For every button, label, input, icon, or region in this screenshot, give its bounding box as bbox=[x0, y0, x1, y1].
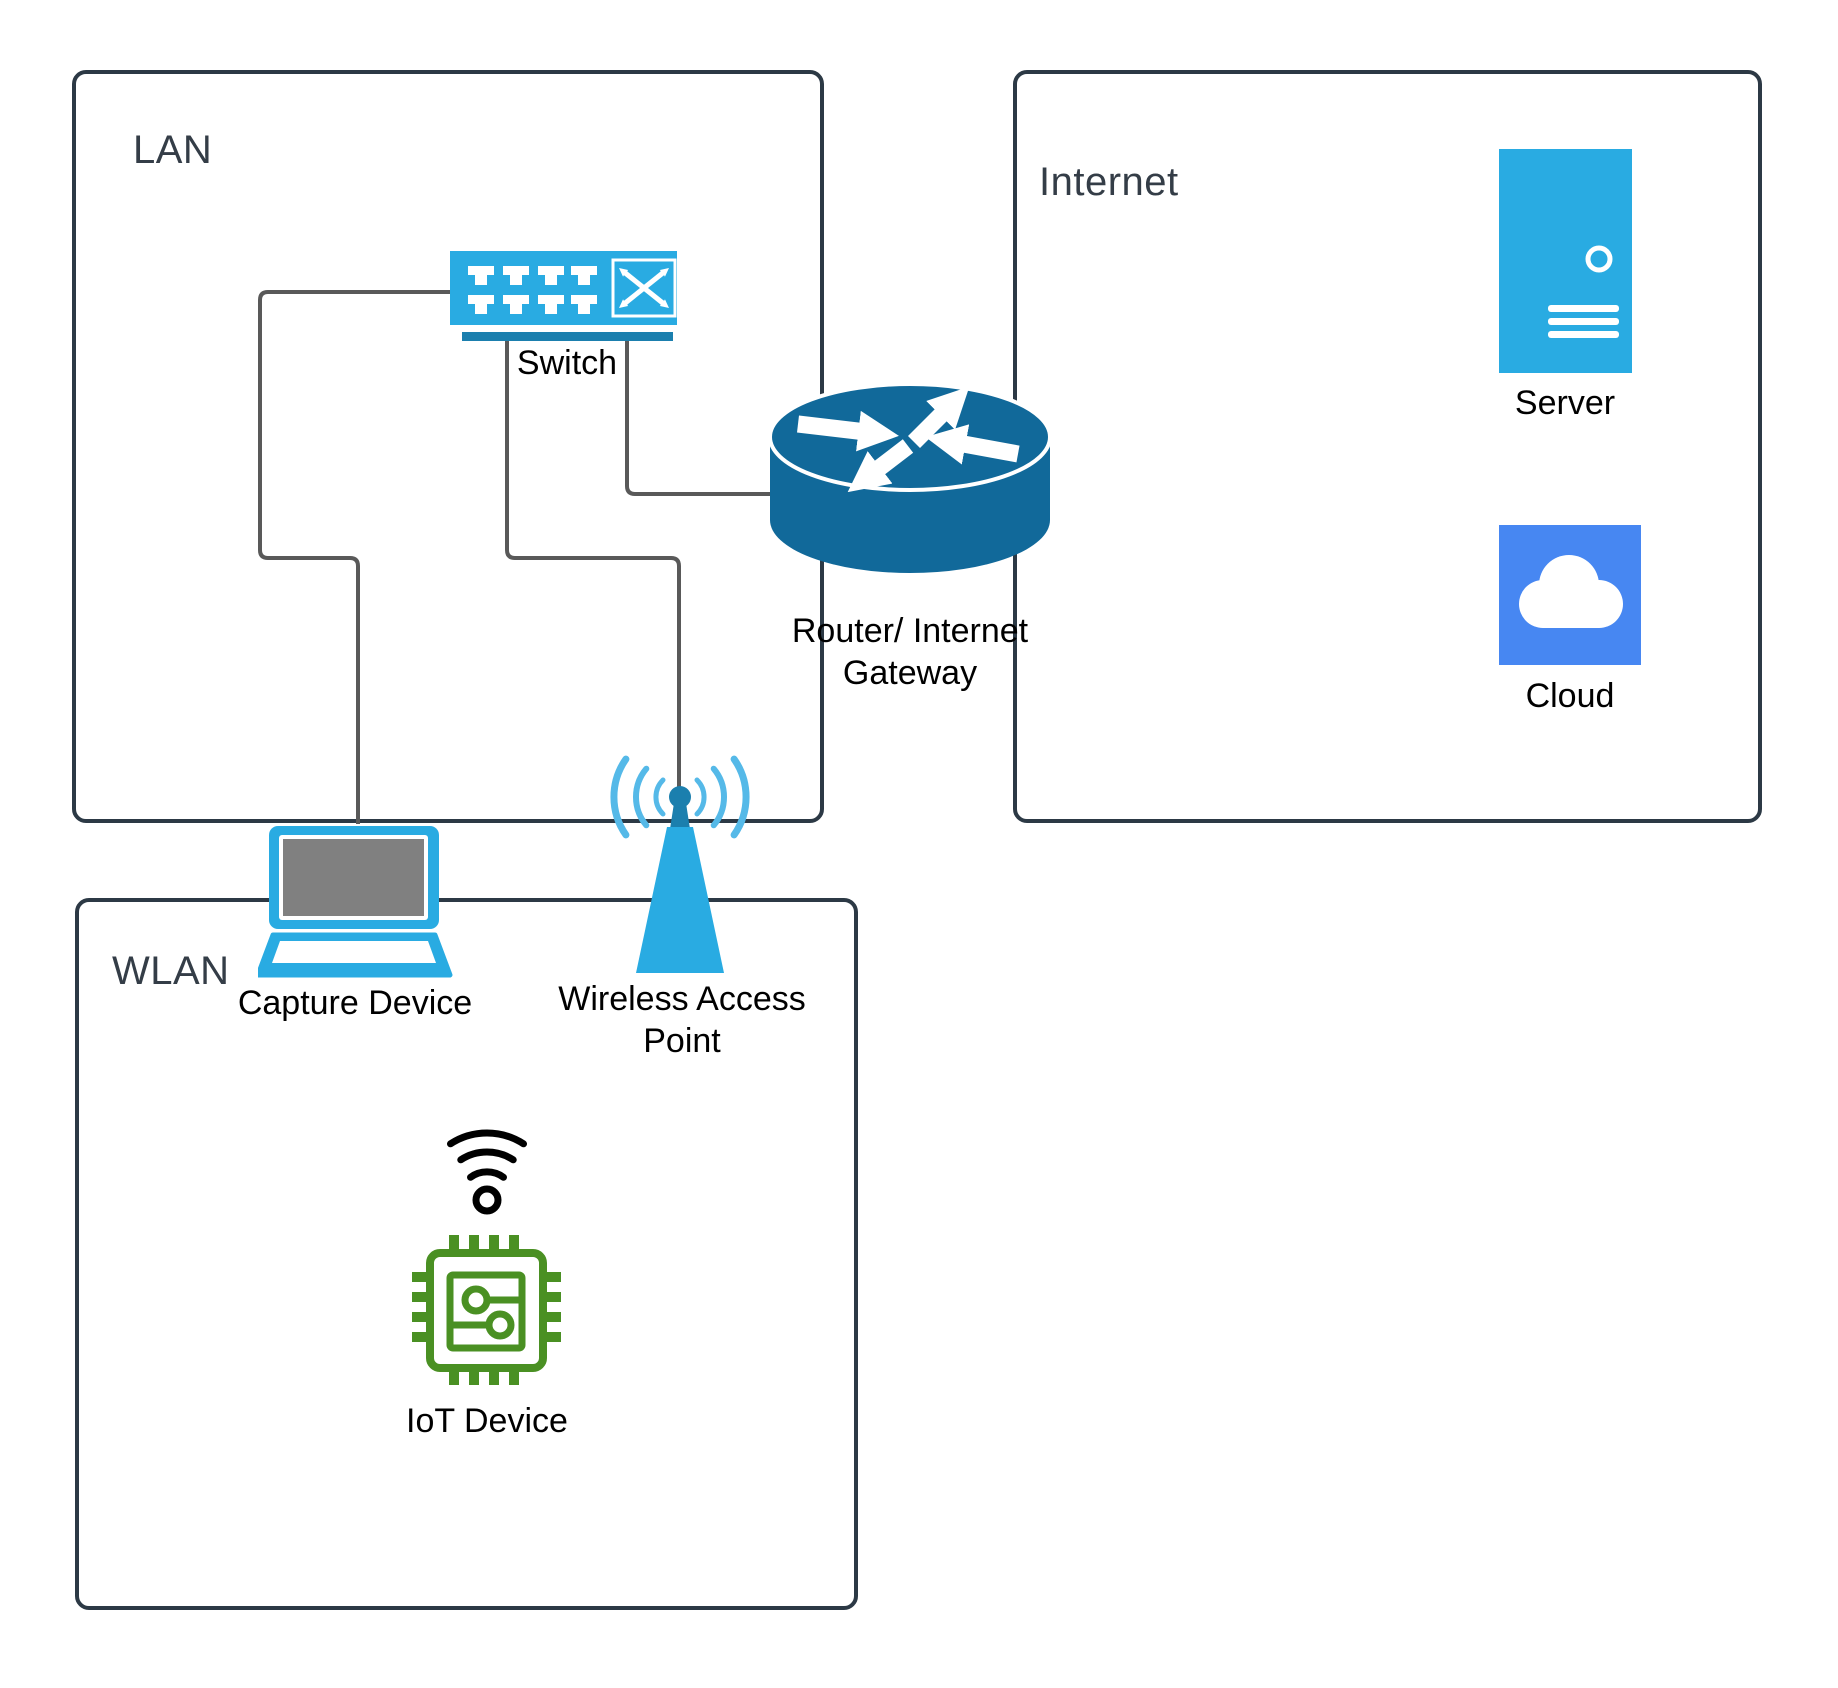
zone-wlan-title: WLAN bbox=[112, 949, 230, 994]
server-icon bbox=[1499, 149, 1632, 373]
wireless-access-point-icon bbox=[600, 745, 765, 980]
zone-internet-title: Internet bbox=[1039, 160, 1179, 205]
iot-device-icon bbox=[405, 1125, 570, 1395]
cloud-icon bbox=[1499, 525, 1641, 665]
switch-icon bbox=[450, 251, 677, 346]
iot-chip-icon bbox=[412, 1235, 561, 1385]
router-icon bbox=[762, 380, 1062, 580]
zone-lan-title: LAN bbox=[133, 128, 212, 173]
capture-device-icon bbox=[258, 822, 454, 978]
capture-device-label: Capture Device bbox=[235, 982, 475, 1024]
zone-lan: LAN bbox=[72, 70, 824, 823]
server-vents bbox=[1548, 305, 1619, 338]
wireless-access-point-label: Wireless Access Point bbox=[542, 978, 822, 1062]
switch-label: Switch bbox=[467, 342, 667, 384]
server-label: Server bbox=[1465, 382, 1665, 424]
network-diagram-canvas: LAN Internet WLAN bbox=[0, 0, 1838, 1688]
router-label: Router/ Internet Gateway bbox=[775, 610, 1045, 694]
cloud-label: Cloud bbox=[1470, 675, 1670, 717]
iot-wifi-icon bbox=[451, 1133, 524, 1211]
iot-device-label: IoT Device bbox=[387, 1400, 587, 1442]
